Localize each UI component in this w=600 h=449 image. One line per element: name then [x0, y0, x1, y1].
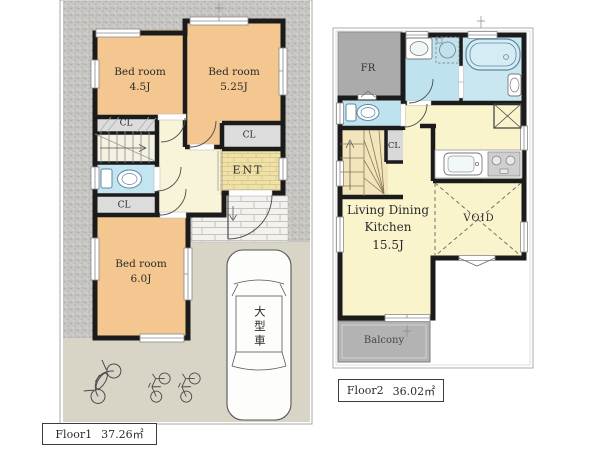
room-name: Bed room [208, 65, 260, 80]
toilet1-door [154, 167, 160, 191]
floor1-area: 37.26㎡ [101, 426, 144, 442]
bathtub [466, 39, 520, 70]
balcony-label: Balcony [364, 335, 404, 347]
closet2f-label: CL [388, 141, 400, 151]
floor2-area: 36.02㎡ [393, 383, 436, 399]
room-size: 6.0J [115, 272, 167, 287]
void-label: VOID [463, 213, 494, 225]
floor2-area-box: Floor2 36.02㎡ [338, 379, 444, 402]
room-name: Living Dining [347, 202, 429, 219]
floor2-name: Floor2 [347, 384, 384, 397]
ldk-label: Living Dining Kitchen 15.5J [347, 202, 429, 254]
floor1-name: Floor1 [55, 428, 92, 441]
floor1-area-box: Floor1 37.26㎡ [42, 423, 157, 445]
room-size: 15.5J [347, 237, 429, 254]
toilet2-door [401, 104, 406, 126]
dimension-tick [477, 16, 485, 28]
closet1-label: CL [120, 119, 133, 130]
bath-counter [508, 74, 521, 96]
washbasin [406, 38, 432, 59]
room-name: Bed room [114, 65, 166, 80]
closet3-label: CL [118, 201, 131, 212]
room-name: Kitchen [347, 219, 429, 236]
bedroom1-door [158, 114, 186, 120]
car-label: 大型車 [252, 305, 266, 349]
closet2-label: CL [243, 131, 256, 142]
entrance-label: ENT [233, 163, 264, 176]
free-room-label: FR [361, 63, 375, 75]
floorplan-drawing [0, 0, 600, 449]
bay-window-gap [459, 256, 495, 261]
room-size: 5.25J [208, 80, 260, 95]
bedroom2-label: Bed room 5.25J [208, 65, 260, 95]
bedroom3-label: Bed room 6.0J [115, 257, 167, 287]
kitchen-counter [435, 150, 522, 178]
room-name: Bed room [115, 257, 167, 272]
room-size: 4.5J [114, 80, 166, 95]
floorplan-canvas: Bed room 4.5J Bed room 5.25J Bed room 6.… [0, 0, 600, 449]
toilet-2f [346, 104, 379, 121]
front-door [229, 190, 272, 196]
bedroom1-label: Bed room 4.5J [114, 65, 166, 95]
